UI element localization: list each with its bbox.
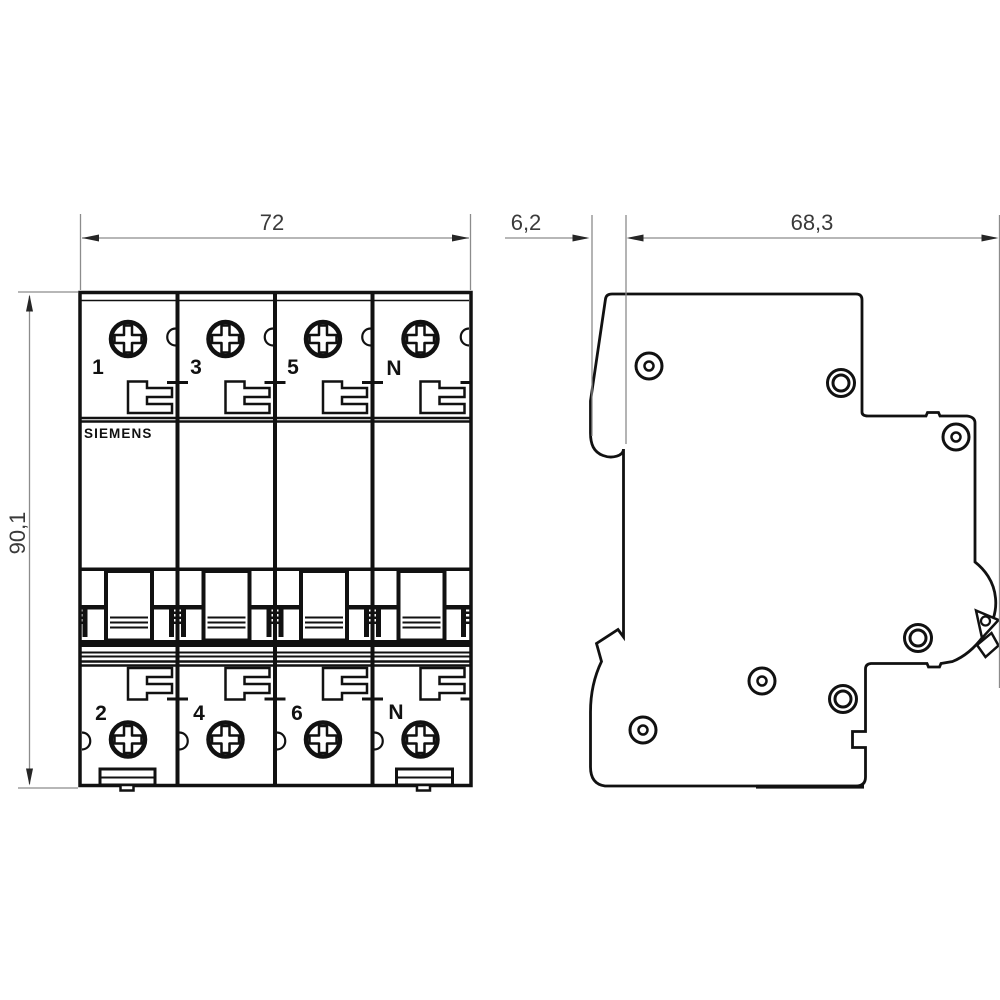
dim-text-height: 90,1: [5, 512, 30, 555]
screw-icon: [306, 322, 340, 356]
dimension-front-height: 90,1: [5, 292, 78, 788]
terminal-label: 2: [95, 702, 107, 725]
handle-bar: [80, 640, 471, 647]
din-rail-seat: [756, 785, 864, 789]
terminal-label: 6: [291, 702, 303, 725]
screw-icon: [306, 723, 340, 757]
technical-drawing-page: 1 3 5 N 2 4 6 N SIEMENS: [0, 0, 1000, 1000]
dim-text-offset: 6,2: [511, 210, 542, 235]
screw-icon: [404, 322, 438, 356]
screw-icon: [209, 322, 243, 356]
screw-icon: [209, 723, 243, 757]
dim-text-depth: 68,3: [791, 210, 834, 235]
drawing-canvas: 1 3 5 N 2 4 6 N SIEMENS: [0, 0, 1000, 1000]
screw-icon: [111, 723, 145, 757]
breaker-side-outline: [591, 294, 996, 786]
screw-icon: [111, 322, 145, 356]
brand-logo: SIEMENS: [84, 426, 152, 441]
front-view: 1 3 5 N 2 4 6 N SIEMENS: [79, 293, 472, 791]
screw-icon: [404, 723, 438, 757]
terminal-label: N: [386, 357, 401, 380]
side-view: [591, 294, 999, 789]
terminal-label: 5: [287, 356, 299, 379]
dimension-front-width: 72: [81, 210, 471, 290]
dim-text-width: 72: [260, 210, 284, 235]
terminal-label: N: [388, 701, 403, 724]
terminal-label: 4: [193, 702, 205, 725]
terminal-label: 1: [92, 356, 104, 379]
terminal-label: 3: [190, 356, 202, 379]
